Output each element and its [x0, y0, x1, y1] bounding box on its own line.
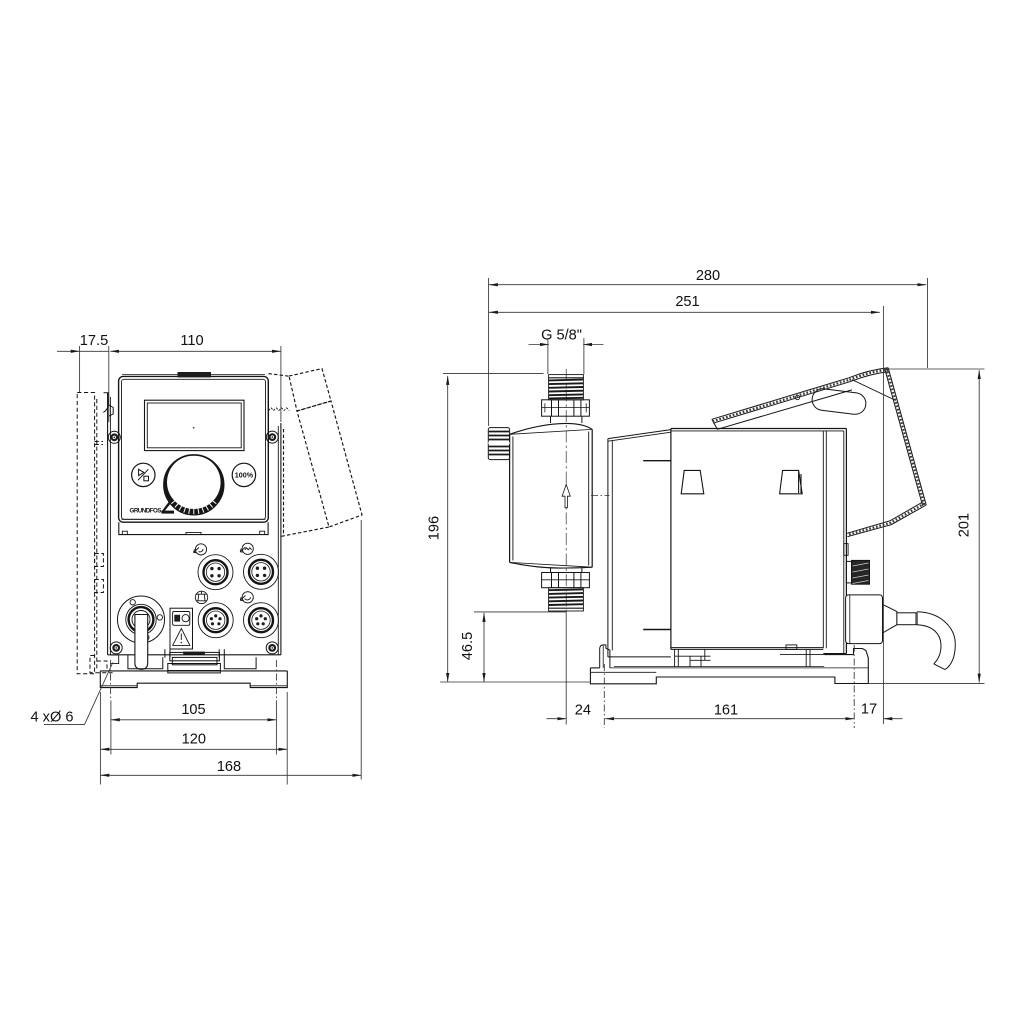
- svg-text:4 xØ 6: 4 xØ 6: [31, 710, 74, 726]
- svg-text:100%: 100%: [235, 471, 254, 480]
- svg-text:196: 196: [427, 516, 443, 540]
- svg-text:17: 17: [861, 702, 877, 718]
- svg-text:201: 201: [957, 513, 973, 537]
- svg-text:24: 24: [575, 703, 591, 719]
- svg-text:251: 251: [675, 294, 699, 310]
- svg-text:46.5: 46.5: [460, 632, 476, 660]
- svg-text:120: 120: [182, 732, 206, 748]
- svg-text:105: 105: [181, 702, 205, 718]
- svg-text:110: 110: [180, 333, 203, 349]
- svg-text:17.5: 17.5: [80, 333, 108, 349]
- svg-text:168: 168: [217, 759, 241, 775]
- svg-text:G 5/8": G 5/8": [541, 328, 582, 344]
- svg-text:280: 280: [696, 268, 720, 284]
- svg-text:161: 161: [714, 703, 738, 719]
- svg-text:GRUNDFOS: GRUNDFOS: [130, 507, 162, 514]
